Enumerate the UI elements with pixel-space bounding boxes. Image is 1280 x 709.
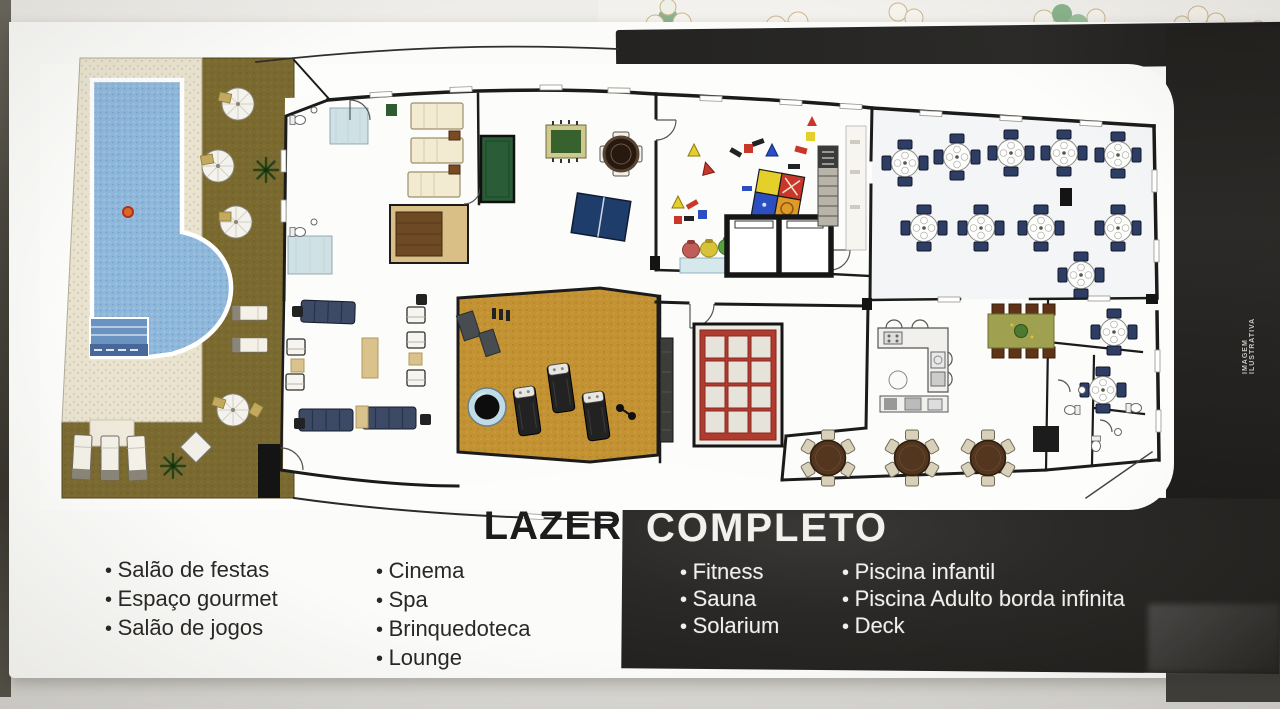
amenities-column-2: CinemaSpaBrinquedotecaLounge [376,557,530,673]
brochure-photo: LAZER COMPLETO Salão de festasEspaço gou… [0,0,1280,709]
title-lazer: LAZER [430,504,622,549]
amenity-item: Piscina infantil [842,559,1125,586]
amenity-item: Cinema [376,557,530,586]
amenities-column-1: Salão de festasEspaço gourmetSalão de jo… [105,556,278,643]
amenity-item: Solarium [680,613,779,640]
amenity-item: Espaço gourmet [105,585,278,614]
amenities-column-3: FitnessSaunaSolarium [680,559,779,640]
amenity-item: Salão de festas [105,556,278,585]
amenity-item: Deck [842,613,1125,640]
amenity-item: Spa [376,586,530,615]
amenities-column-4: Piscina infantilPiscina Adulto borda inf… [842,559,1125,640]
amenity-item: Brinquedoteca [376,615,530,644]
amenity-item: Fitness [680,559,779,586]
amenity-item: Salão de jogos [105,614,278,643]
floor-plan-sheet [40,64,1174,510]
amenity-item: Lounge [376,644,530,673]
amenity-item: Piscina Adulto borda infinita [842,586,1125,613]
watermark-imagem-ilustrativa: IMAGEM ILUSTRATIVA [1242,314,1256,374]
amenity-item: Sauna [680,586,779,613]
title-completo: COMPLETO [646,506,888,551]
page-curl-highlight [1148,604,1280,672]
